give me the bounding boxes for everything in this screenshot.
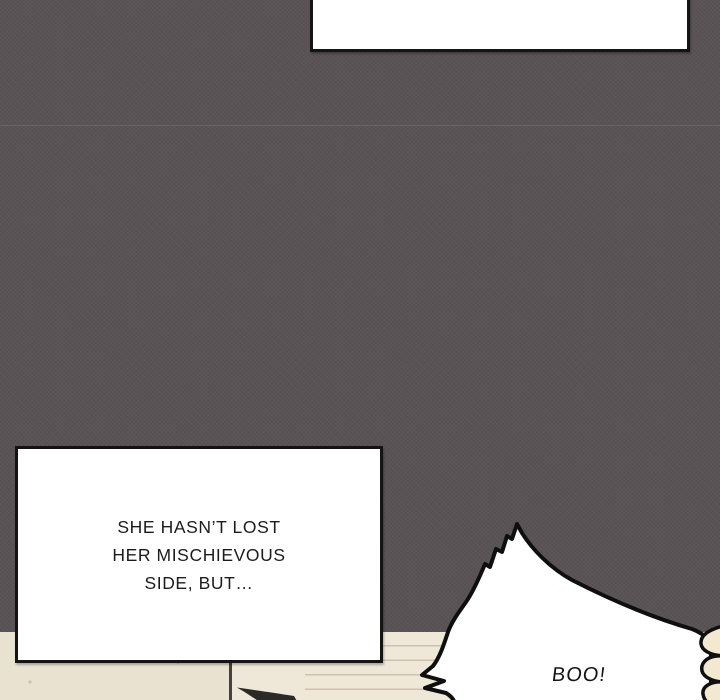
narration-caption-box: SHE HASN’T LOST HER MISCHIEVOUS SIDE, BU… xyxy=(15,446,383,663)
shout-text: BOO! xyxy=(543,663,616,687)
narration-line: SHE HASN’T LOST xyxy=(117,513,280,541)
panel-seam-line xyxy=(0,125,720,126)
top-caption-box xyxy=(310,0,690,52)
narration-line: HER MISCHIEVOUS xyxy=(112,541,285,569)
narration-line: SIDE, BUT… xyxy=(144,569,253,597)
comic-page: SHE HASN’T LOST HER MISCHIEVOUS SIDE, BU… xyxy=(0,0,720,700)
